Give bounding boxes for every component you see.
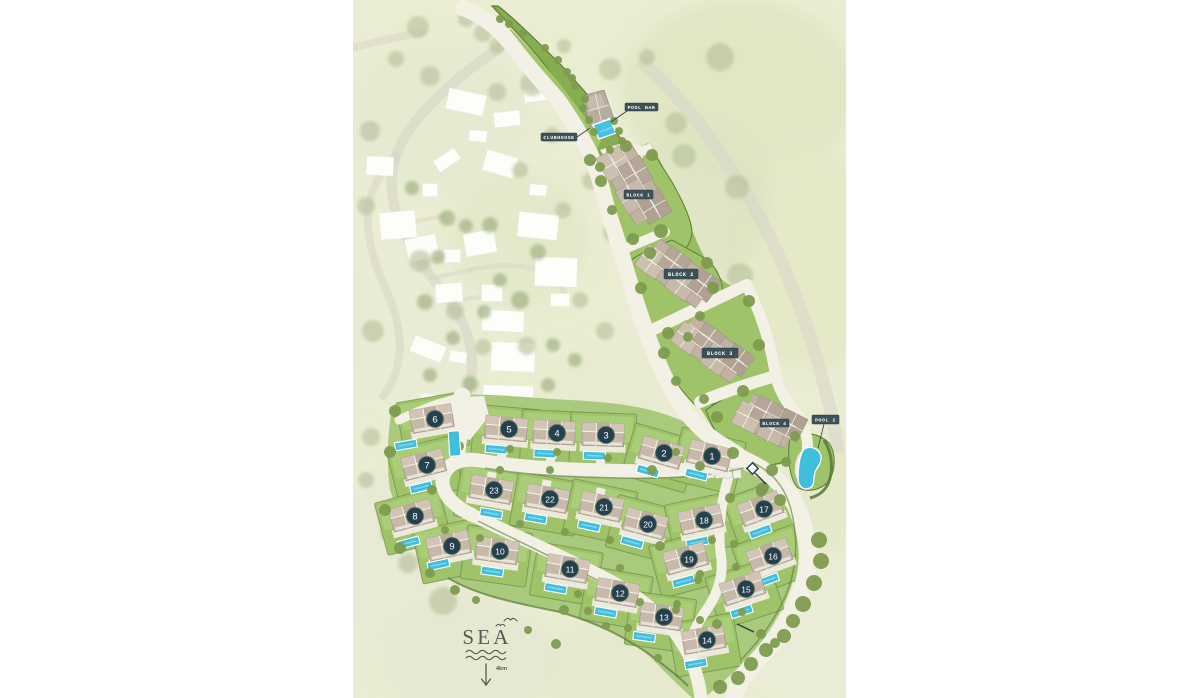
svg-text:21: 21 (599, 502, 609, 512)
svg-text:BLOCK 4: BLOCK 4 (762, 421, 786, 427)
svg-text:6: 6 (432, 414, 437, 425)
svg-text:1: 1 (709, 451, 714, 462)
svg-text:BLOCK 3: BLOCK 3 (707, 351, 733, 357)
svg-text:4km: 4km (496, 666, 507, 672)
svg-text:20: 20 (643, 519, 653, 529)
svg-text:22: 22 (545, 494, 555, 504)
svg-text:POOL BAR: POOL BAR (628, 105, 656, 111)
svg-text:14: 14 (702, 635, 712, 645)
svg-text:8: 8 (412, 511, 417, 522)
svg-text:BLOCK 2: BLOCK 2 (668, 272, 694, 278)
svg-text:9: 9 (449, 541, 454, 552)
svg-text:SEA: SEA (462, 625, 511, 649)
svg-text:5: 5 (506, 424, 511, 435)
svg-text:11: 11 (566, 564, 575, 574)
svg-text:BLOCK 1: BLOCK 1 (626, 192, 650, 198)
svg-text:18: 18 (699, 515, 709, 525)
svg-text:15: 15 (741, 584, 751, 594)
svg-text:10: 10 (495, 546, 505, 556)
svg-text:13: 13 (659, 612, 669, 622)
svg-text:7: 7 (424, 460, 429, 471)
svg-text:CLUBHOUSE: CLUBHOUSE (543, 135, 574, 141)
svg-text:4: 4 (554, 428, 559, 439)
svg-text:POOL 2: POOL 2 (815, 417, 836, 423)
svg-text:2: 2 (661, 448, 666, 459)
svg-text:17: 17 (759, 504, 769, 514)
svg-text:16: 16 (768, 551, 778, 561)
svg-text:19: 19 (684, 554, 694, 564)
svg-text:12: 12 (615, 588, 625, 598)
svg-text:3: 3 (603, 430, 608, 441)
svg-text:23: 23 (489, 485, 499, 495)
